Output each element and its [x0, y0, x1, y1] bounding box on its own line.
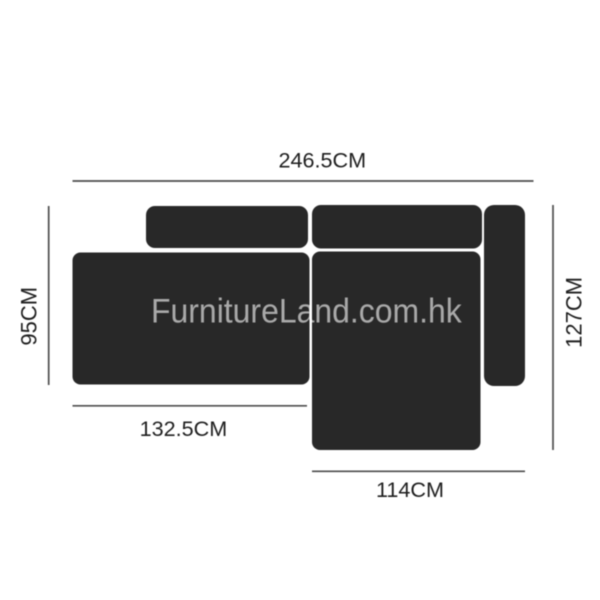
svg-text:114CM: 114CM: [376, 477, 444, 502]
svg-text:FurnitureLand.com.hk: FurnitureLand.com.hk: [151, 292, 462, 330]
svg-text:132.5CM: 132.5CM: [140, 416, 228, 441]
svg-text:246.5CM: 246.5CM: [278, 148, 366, 173]
svg-text:127CM: 127CM: [562, 277, 587, 348]
svg-text:95CM: 95CM: [17, 287, 42, 346]
